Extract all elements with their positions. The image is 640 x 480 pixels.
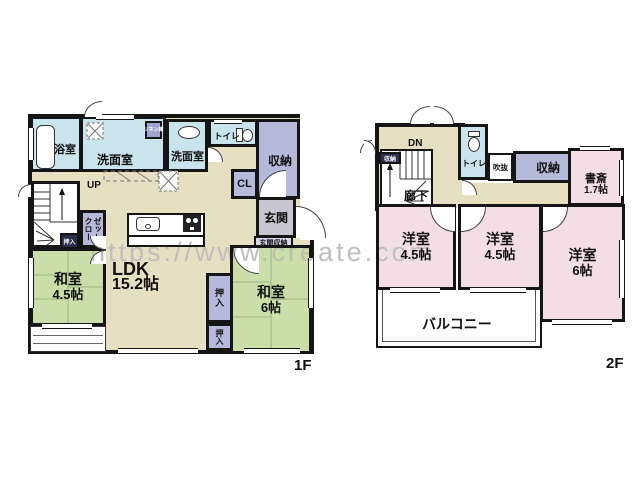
room-label-cl: CL [237,178,252,190]
oshiire-stairs: 押入 [60,233,79,249]
room-label-washitsu-6: 和室 6帖 [257,285,285,315]
bathtub-icon [36,125,55,169]
porch [30,326,106,352]
room-name: 洋室 [569,248,597,263]
window [42,323,92,329]
wall [375,123,379,211]
room-label-western-right: 洋室 6帖 [569,248,597,278]
room-label-study: 書斎 1.7帖 [584,173,608,197]
floorplan-page: { "watermark": "https://www.create.com",… [0,0,640,480]
room-name: 洋室 [484,232,515,247]
oshiire-lower-label: 押入 [214,329,225,345]
room-size: 15.2帖 [112,277,202,292]
stairs-up-label: UP [87,180,101,191]
room-label-bath: 浴室 [54,141,76,157]
room-label-entrance: 玄関 [264,209,288,226]
room-void: 吹抜 [488,153,513,181]
room-washroom-left: リネン庫 洗面室 [80,116,166,172]
closet-door-arc [410,106,430,124]
window [619,240,625,298]
room-study: 書斎 1.7帖 [568,148,624,206]
room-size: 1.7帖 [584,185,608,197]
oshiire-lower: 押入 [206,323,233,351]
room-label-western-middle: 洋室 4.5帖 [484,232,515,262]
room-name: 和室 [257,285,285,300]
window [118,348,198,354]
washing-pan-icon [158,170,179,192]
room-washroom-right: 洗面室 [166,119,208,172]
toilet-bowl-icon-1f [242,129,253,142]
room-label-void: 吹抜 [493,162,508,173]
storage-stairs-2f: 収納 [379,152,401,164]
room-label-ldk: LDK 15.2帖 [112,262,202,292]
window [308,258,314,308]
floor1-label: 1F [294,357,312,374]
room-toilet-2f: トイレ [458,124,488,180]
room-size: 4.5帖 [484,247,515,262]
sink-icon [178,126,200,139]
window [28,128,34,160]
closet-door-arc [434,106,454,124]
kitchen-counter-ledge [127,237,205,247]
window [552,319,612,325]
storage-stairs-label: 収納 [384,154,396,163]
oshiire-upper-label: 押入 [213,288,226,308]
room-size: 4.5帖 [400,247,431,262]
entrance-door-arc [296,206,326,238]
window [390,287,440,293]
room-label-washitsu-4-5: 和室 4.5帖 [52,272,83,302]
stairs-down-label: DN [408,138,422,149]
dashed-counter [103,170,159,182]
room-name: 洋室 [400,232,431,247]
room-size: 6帖 [569,263,597,278]
room-closet-cl: CL [231,169,258,199]
window [28,258,34,308]
sink-drain-icon [145,224,151,229]
floor2-label: 2F [606,355,624,372]
linen-closet-label: リネン庫 [144,127,164,133]
back-door-arc [84,101,102,117]
room-name: 和室 [52,272,83,287]
room-entrance: 玄関 [256,197,296,238]
room-bathroom: 浴室 [30,116,82,172]
room-name: LDK [112,262,202,277]
room-size: 4.5帖 [52,287,83,302]
room-label-toilet-1f: トイレ [214,130,240,142]
stove-icon [183,215,201,232]
linen-closet: リネン庫 [145,121,162,139]
room-label-storage-1f: 収納 [268,152,292,169]
room-name: 書斎 [584,173,608,185]
window [244,348,300,354]
window [580,146,610,151]
balcony-label: バルコニー [422,314,492,334]
balcony: バルコニー [376,290,542,348]
oshiire-stairs-label: 押入 [63,237,75,246]
room-label-toilet-2f: トイレ [462,158,486,169]
window [214,119,242,124]
oshiire-upper: 押入 [206,273,233,323]
room-label-western-left: 洋室 4.5帖 [400,232,431,262]
window [470,287,526,293]
toilet-bowl-icon-2f [468,137,480,152]
shutter-arc [18,184,31,197]
room-label-washroom-right: 洗面室 [171,148,204,164]
room-label-washroom-left: 洗面室 [97,151,133,168]
corridor-label: 廊下 [404,187,428,204]
room-label-storage-2f: 収納 [536,159,560,176]
room-size: 6帖 [257,300,285,315]
washing-machine-icon [86,122,104,140]
window [619,160,624,196]
